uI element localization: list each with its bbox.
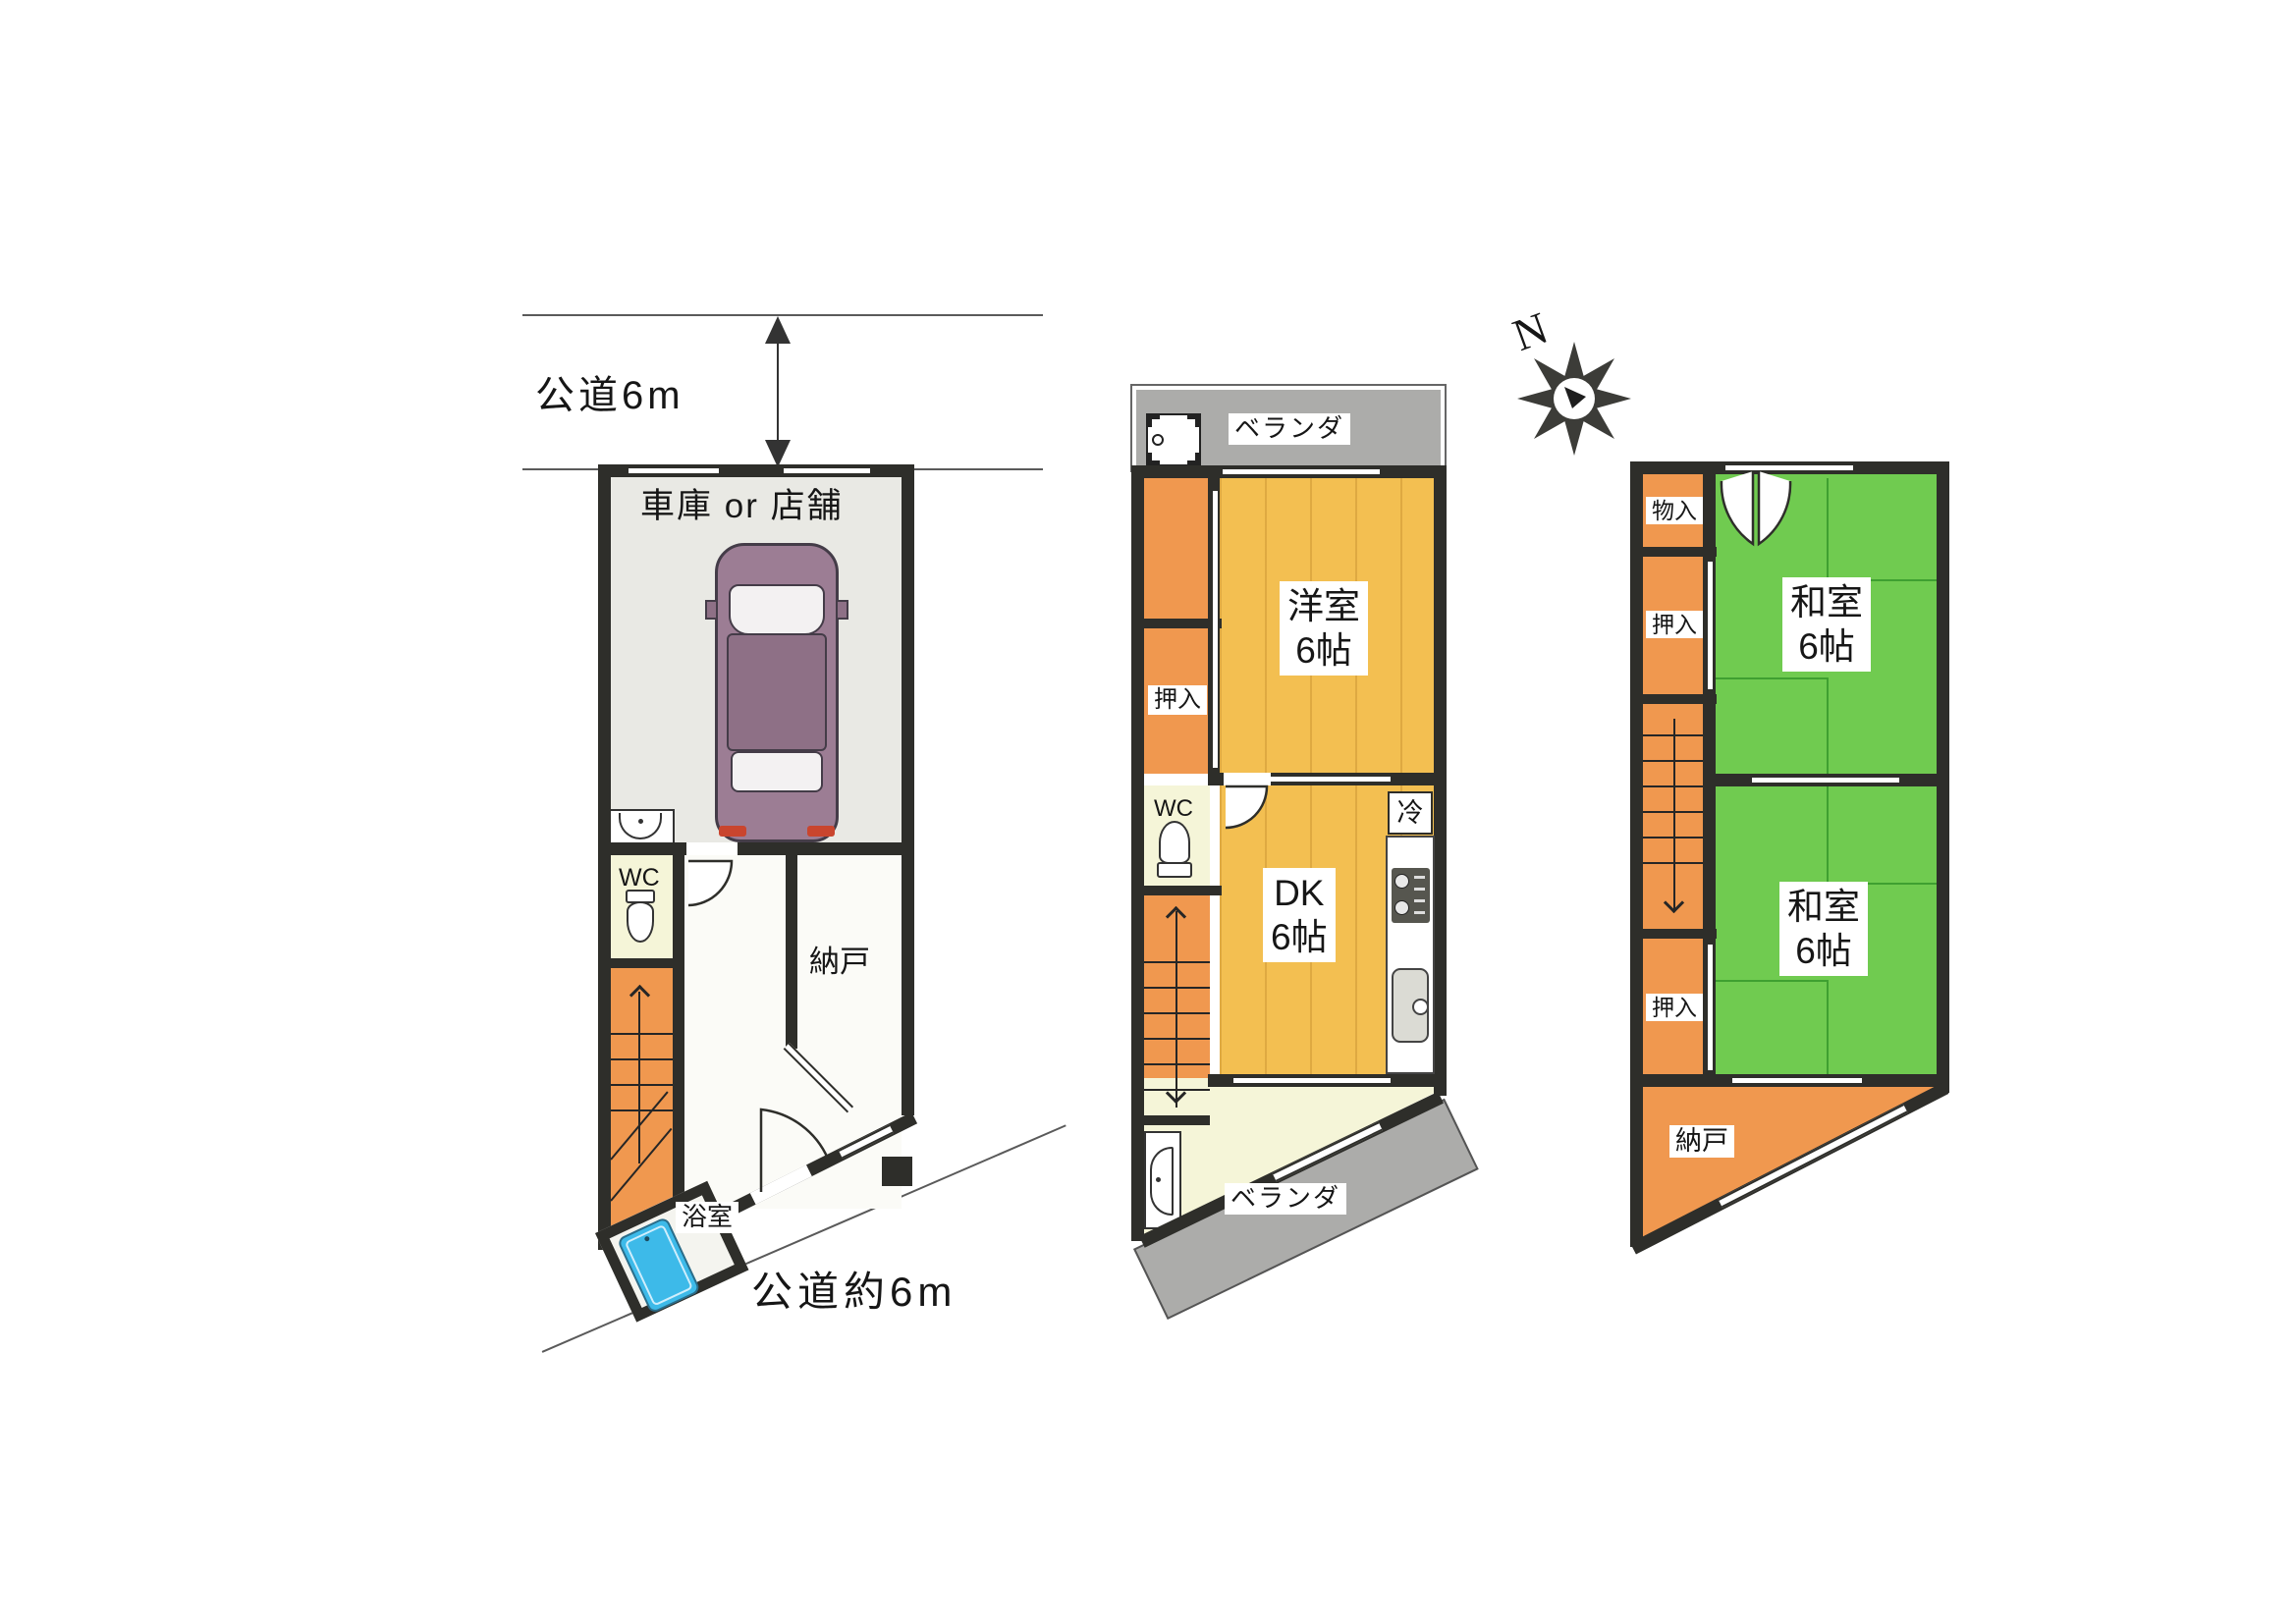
stair-arrow-line-f2 (1175, 911, 1177, 1108)
f1-wall-wc-bottom (598, 958, 684, 968)
f2-dk-bottom-window (1233, 1076, 1391, 1085)
road-top-label: 公道6m (535, 373, 684, 418)
closet-upper-label-f3: 押入 (1646, 611, 1703, 638)
western-room-size: 6帖 (1287, 628, 1360, 673)
closet-lower-label-f3: 押入 (1646, 994, 1703, 1021)
f3-rooms-sliding-door (1752, 776, 1899, 784)
storage-label-f1: 納戸 (809, 945, 870, 980)
f2-dk-door-arc (1224, 784, 1271, 832)
tatami-seam (1716, 677, 1829, 679)
garage-label: 車庫 or 店舗 (640, 487, 844, 526)
kitchen-sink-icon (1392, 968, 1429, 1043)
f2-wall-wc-bottom (1131, 886, 1222, 895)
f3-fusuma-upper (1706, 562, 1715, 689)
washbasin-bowl (619, 813, 662, 839)
japanese-room-2-name: 和室 (1787, 885, 1860, 929)
stove-grill-1 (1414, 876, 1425, 879)
car-icon (709, 543, 845, 842)
f3-fusuma-lower (1706, 945, 1715, 1070)
toilet-bowl (627, 901, 654, 943)
western-room-name: 洋室 (1287, 584, 1360, 628)
tatami-seam (1827, 478, 1829, 579)
toilet-bowl-f2 (1159, 821, 1190, 864)
car-windshield (729, 584, 825, 635)
toilet-base-f2 (1157, 862, 1192, 878)
japanese-room-1-name: 和室 (1790, 580, 1863, 624)
japanese-room-1-size: 6帖 (1790, 624, 1863, 669)
bathtub-inner-line (625, 1224, 693, 1307)
kitchen-faucet (1412, 999, 1429, 1015)
closet-label-f2: 押入 (1148, 685, 1207, 715)
stove-burner-1 (1394, 874, 1409, 889)
stair-arrow-line-f1 (638, 992, 640, 1163)
washer-corner-tl (1148, 415, 1160, 427)
car-rear-window (731, 751, 823, 792)
japanese-room-1-label: 和室 6帖 (1782, 577, 1871, 672)
washer-dial (1152, 434, 1164, 446)
bath-label: 浴室 (676, 1202, 738, 1233)
stove-grill-2 (1414, 888, 1425, 891)
f1-wall-left (598, 464, 611, 1250)
washer-corner-br (1187, 453, 1199, 464)
stair-treads-f1 (610, 1009, 673, 1129)
car-roof (727, 633, 827, 751)
car-mirror-right (836, 600, 848, 620)
washer-corner-bl (1148, 453, 1160, 464)
washer-corner-tr (1187, 415, 1199, 427)
washing-machine-icon (1146, 413, 1201, 466)
western-room-label: 洋室 6帖 (1280, 581, 1368, 676)
f1-hall-door-arc (686, 859, 738, 910)
tatami-seam (1716, 980, 1829, 982)
f1-window-top-2 (784, 466, 870, 475)
road-width-arrow-up (765, 316, 791, 344)
washbasin-bowl-f2 (1150, 1147, 1174, 1216)
japanese-room-2-label: 和室 6帖 (1779, 882, 1868, 976)
f1-entry-door-arc (758, 1108, 831, 1194)
storage-label-f3: 納戸 (1669, 1125, 1734, 1158)
car-taillight-left (719, 826, 746, 837)
road-bottom-label: 公道約6m (751, 1269, 957, 1316)
dk-room-label: DK 6帖 (1263, 868, 1336, 962)
survey-marker-square (882, 1157, 912, 1186)
f1-window-top-1 (629, 466, 719, 475)
stove-burner-2 (1394, 900, 1409, 915)
wc-label-f1: WC (619, 864, 660, 893)
tatami-seam (1827, 677, 1829, 774)
stove-grill-4 (1414, 911, 1425, 914)
tatami-seam (1827, 786, 1829, 883)
f1-wall-garage-bottom (598, 842, 914, 855)
stove-grill-3 (1414, 899, 1425, 902)
washbasin-drain-f2 (1156, 1177, 1161, 1182)
f1-wall-wc-column (673, 842, 684, 1208)
car-mirror-left (705, 600, 718, 620)
f3-double-door-arc (1719, 469, 1793, 550)
f1-door-gap-hall (686, 842, 738, 855)
washbasin-icon-garage (606, 809, 675, 846)
gas-stove-icon (1392, 868, 1430, 923)
washbasin-drain (638, 819, 643, 824)
f2-closet-fusuma (1211, 491, 1220, 768)
f3-room2-bottom-window (1732, 1076, 1862, 1085)
wc-label-f2: WC (1154, 795, 1193, 823)
road-width-arrow-down (765, 440, 791, 467)
f1-wall-storage-left (786, 846, 797, 1049)
dk-room-size: 6帖 (1271, 915, 1328, 959)
veranda-top-label: ベランダ (1229, 413, 1350, 445)
japanese-room-2-size: 6帖 (1787, 929, 1860, 973)
closet-top-f2 (1144, 478, 1210, 619)
washbasin-icon-f2 (1144, 1131, 1181, 1229)
toilet-icon-f1 (626, 890, 655, 945)
veranda-bottom-label: ベランダ (1225, 1183, 1346, 1215)
f2-wall-stairs-bottom (1131, 1115, 1210, 1125)
dk-room-name: DK (1271, 871, 1328, 915)
small-storage-label: 物入 (1646, 497, 1703, 524)
refrigerator-box: 冷 (1388, 791, 1433, 835)
car-taillight-right (807, 826, 835, 837)
floorplan-canvas: 公道6m (0, 0, 2296, 1623)
stair-arrow-line-f3 (1673, 719, 1675, 911)
f3-wall-left (1630, 461, 1643, 1247)
f1-wall-right (902, 464, 914, 1115)
fridge-label: 冷 (1397, 798, 1424, 828)
f2-window-top (1223, 467, 1380, 476)
toilet-icon-f2 (1157, 821, 1192, 880)
tatami-seam (1827, 980, 1829, 1074)
